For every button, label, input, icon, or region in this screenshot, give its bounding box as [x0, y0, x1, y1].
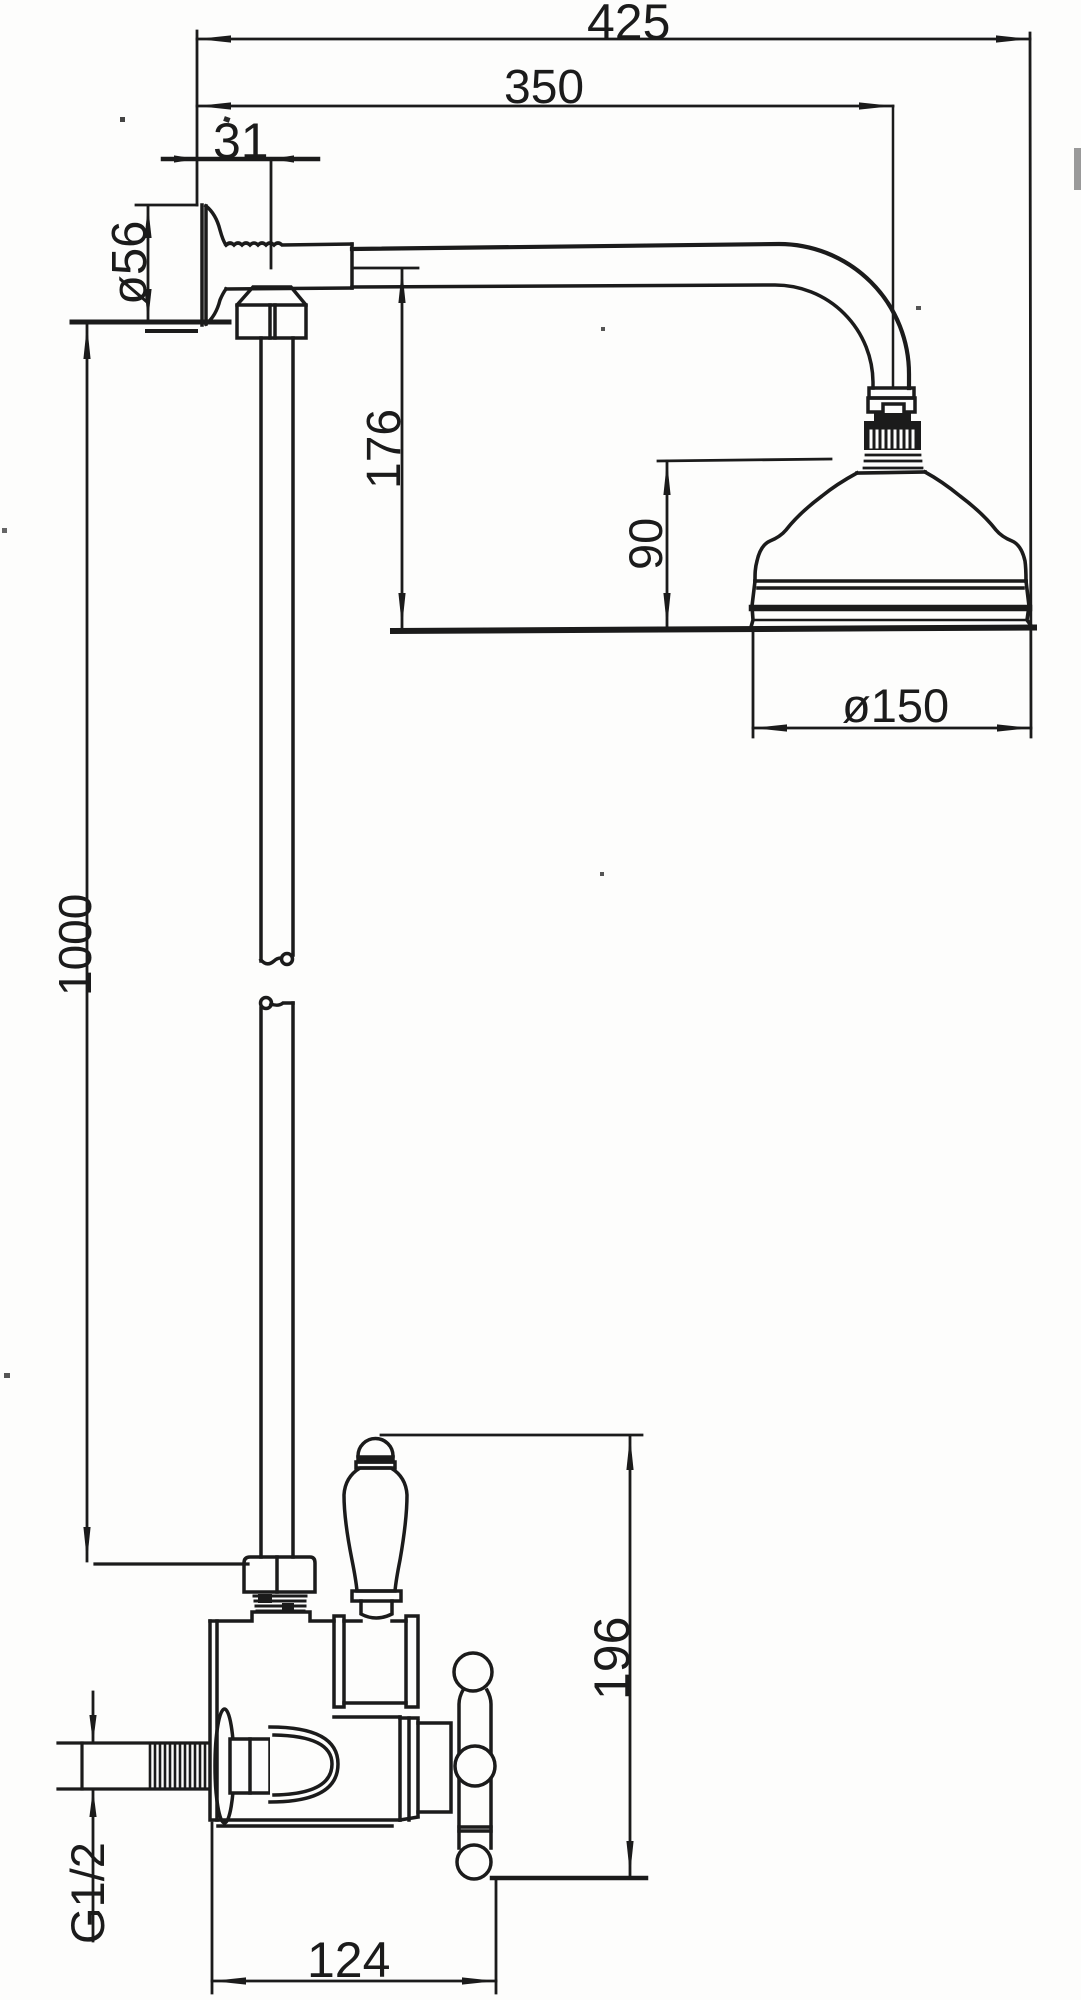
svg-text:425: 425: [587, 0, 670, 50]
svg-text:G1/2: G1/2: [61, 1842, 114, 1944]
svg-text:ø150: ø150: [842, 679, 949, 732]
svg-text:1000: 1000: [49, 894, 101, 996]
svg-text:196: 196: [584, 1617, 640, 1700]
svg-text:90: 90: [619, 518, 672, 570]
